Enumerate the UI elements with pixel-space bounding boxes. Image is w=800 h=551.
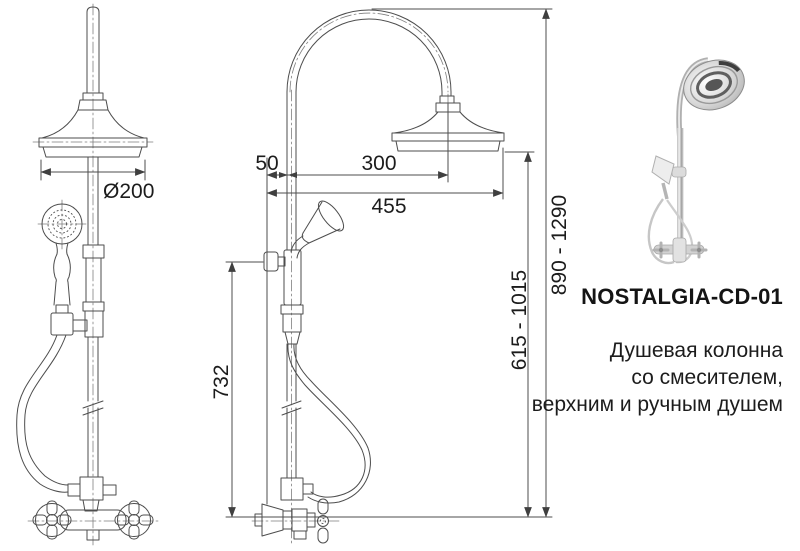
- front-left-cross-handle: [33, 501, 71, 539]
- side-view-drawing: 50 300 455 732 615 - 1015 890 - 1290: [210, 9, 571, 545]
- technical-drawing: Ø200: [0, 0, 800, 551]
- dim-label-handshower-height: 615 - 1015: [508, 270, 531, 370]
- dim-label-holder-height: 732: [210, 364, 233, 399]
- front-column-pipe: [83, 157, 104, 477]
- front-hose: [17, 335, 68, 492]
- product-description-line-3: верхним и ручным душем: [532, 391, 783, 418]
- side-hand-shower: [264, 197, 348, 271]
- dim-label-arm-reach: 300: [361, 152, 396, 175]
- side-gooseneck-arm: [287, 10, 460, 112]
- dim-label-wall-offset: 50: [255, 152, 278, 175]
- dim-label-head-diameter: Ø200: [103, 180, 154, 203]
- dim-label-overall-reach: 455: [371, 195, 406, 218]
- product-model: NOSTALGIA-CD-01: [581, 284, 783, 310]
- photo-hand-shower: [652, 156, 674, 199]
- photo-mixer: [654, 238, 706, 262]
- catalog-page: Ø200: [0, 0, 800, 551]
- photo-riser-pipe: [677, 128, 684, 256]
- front-right-cross-handle: [115, 501, 153, 539]
- product-description: Душевая колонна со смесителем, верхним и…: [532, 337, 783, 418]
- photo-shower-head: [677, 52, 752, 118]
- dimension-lines: [232, 9, 546, 517]
- side-riser-pipe: [281, 92, 313, 500]
- extension-lines: [226, 9, 552, 517]
- front-view-drawing: Ø200: [17, 4, 158, 545]
- product-photo: [649, 52, 752, 263]
- dim-label-overall-height: 890 - 1290: [548, 195, 571, 295]
- product-description-line-2: со смесителем,: [532, 364, 783, 391]
- product-description-line-1: Душевая колонна: [532, 337, 783, 364]
- side-hose: [288, 344, 371, 503]
